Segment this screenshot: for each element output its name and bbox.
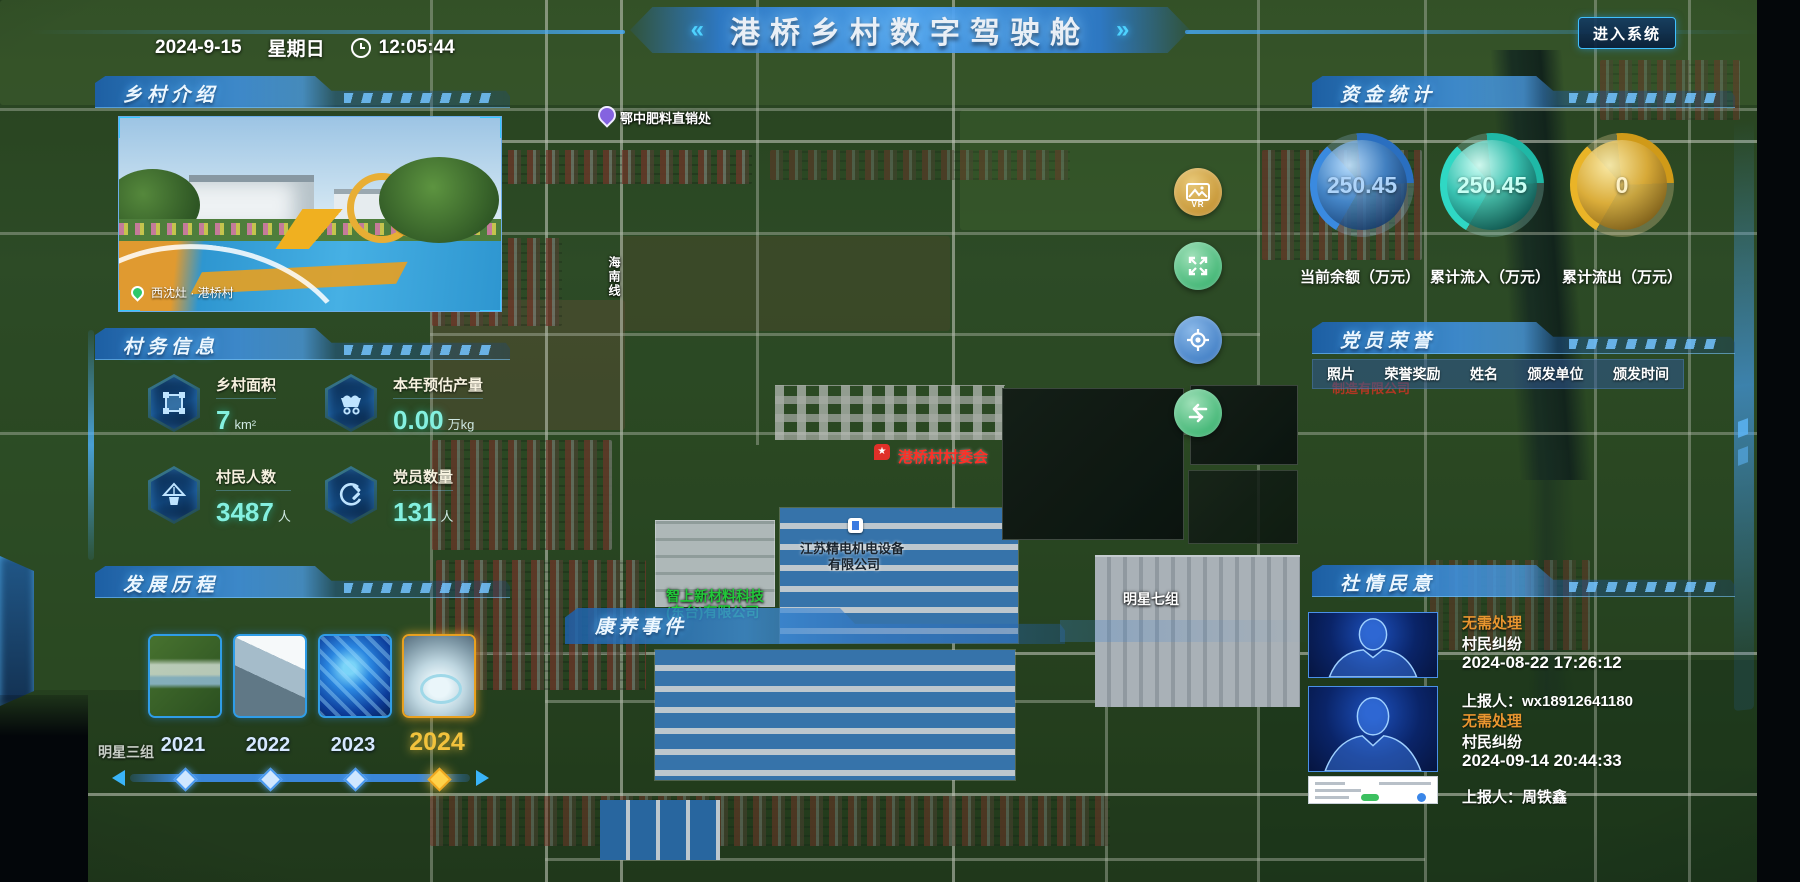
frame-decoration-right	[1734, 119, 1754, 711]
year-label-2022[interactable]: 2022	[233, 734, 303, 757]
year-label-2024[interactable]: 2024	[402, 728, 472, 757]
development-thumb-2024[interactable]	[402, 634, 476, 718]
frame-decoration-left	[88, 330, 94, 560]
stat-village-area: 乡村面积 7km²	[148, 374, 318, 436]
photo-tree	[379, 157, 499, 243]
panel-title-health-events: 康养事件	[595, 612, 687, 639]
gauge-sphere: 0	[1577, 140, 1667, 230]
stat-label: 村民人数	[216, 466, 291, 491]
farmer-icon	[148, 466, 200, 524]
map-label-group7: 明星七组	[1123, 589, 1179, 609]
thumb-image-2022	[235, 636, 305, 716]
corner-bracket-icon	[118, 290, 140, 312]
map-feature	[620, 236, 950, 331]
map-label-company1-line2: 有限公司	[828, 554, 880, 573]
gauge-total-inflow: 250.45	[1440, 133, 1544, 237]
corner-bracket-icon	[480, 290, 502, 312]
datetime-bar: 2024-9-15 星期日 12:05:44	[155, 34, 455, 61]
gauge-current-balance: 250.45	[1310, 133, 1414, 237]
frame-decoration-bottom-left	[0, 556, 34, 706]
year-label-2023[interactable]: 2023	[318, 734, 388, 757]
gauge-value: 0	[1616, 172, 1629, 199]
chevron-right-icon: »	[1116, 16, 1129, 44]
opinion-item-screenshot[interactable]	[1308, 776, 1438, 804]
photo-caption-text: 西沈灶 · 港桥村	[151, 284, 234, 301]
stat-label: 乡村面积	[216, 374, 276, 399]
panel-header-funds: 资金统计	[1312, 76, 1735, 108]
vr-label: VR	[1191, 200, 1204, 209]
panel-title-development: 发展历程	[123, 570, 219, 597]
honor-column-date: 颁发时间	[1613, 364, 1669, 384]
gauge-sphere: 250.45	[1317, 140, 1407, 230]
opinion-status: 无需处理	[1462, 612, 1522, 633]
honor-column-photo: 照片	[1327, 364, 1355, 384]
fullscreen-icon	[1187, 255, 1209, 277]
opinion-reporter: 上报人：wx18912641180	[1462, 690, 1633, 711]
development-thumb-2021[interactable]	[148, 634, 222, 718]
gauge-value: 250.45	[1327, 172, 1397, 199]
panel-header-stripes	[344, 345, 494, 355]
map-label-group3: 明星三组	[98, 742, 154, 762]
gauge-total-outflow: 0	[1570, 133, 1674, 237]
honor-column-award: 荣誉奖励	[1385, 364, 1441, 384]
opinion-item-avatar[interactable]	[1308, 686, 1438, 772]
map-river	[1490, 50, 1592, 480]
dashboard-root: 鄂中肥料直销处 ★ 港桥村村委会 江苏精电机电设备 有限公司 智上新材料科技 (…	[0, 0, 1800, 882]
panel-title-funds: 资金统计	[1340, 80, 1436, 107]
corner-bracket-icon	[118, 116, 140, 138]
panel-title-village-intro: 乡村介绍	[123, 80, 219, 107]
stat-unit: km²	[234, 417, 256, 432]
opinion-item-avatar[interactable]	[1308, 612, 1438, 678]
photo-caption: 西沈灶 · 港桥村	[131, 284, 234, 301]
party-emblem-icon	[325, 466, 377, 524]
corner-bracket-icon	[480, 116, 502, 138]
map-road	[0, 108, 1800, 111]
screen-edge-bottom-left	[0, 695, 88, 882]
stat-value: 0.00	[393, 405, 444, 435]
vr-button[interactable]: VR	[1174, 168, 1222, 216]
thumb-image-2024	[404, 636, 474, 716]
map-houses	[430, 796, 1110, 846]
map-residential	[775, 385, 1005, 440]
panel-title-village-info: 村务信息	[123, 332, 219, 359]
panel-header-stripes	[344, 583, 494, 593]
vr-panorama-icon	[1186, 183, 1210, 201]
panel-header-stripes	[1569, 582, 1719, 592]
panel-header-village-intro: 乡村介绍	[95, 76, 510, 108]
map-road	[756, 0, 759, 445]
map-label-committee: 港桥村村委会	[898, 446, 988, 467]
panel-title-opinion: 社情民意	[1340, 569, 1436, 596]
date-text: 2024-9-15	[155, 37, 242, 59]
year-label-2021[interactable]: 2021	[148, 734, 218, 757]
stat-value: 131	[393, 497, 436, 527]
stat-estimated-yield: 本年预估产量 0.00万kg	[325, 374, 495, 436]
thumb-image-2021	[150, 636, 220, 716]
timeline-next-icon[interactable]	[476, 770, 489, 786]
map-label-road: 海南线	[606, 256, 623, 298]
header-title-band: « 港桥乡村数字驾驶舱 »	[630, 7, 1190, 53]
screenshot-blue-dot	[1417, 793, 1426, 802]
time-text: 12:05:44	[379, 37, 455, 59]
map-houses	[770, 150, 1070, 180]
opinion-time: 2024-09-14 20:44:33	[1462, 751, 1622, 771]
switch-arrows-icon	[1186, 402, 1210, 424]
star-pin-icon: ★	[874, 444, 890, 460]
panel-header-stripes	[1569, 93, 1719, 103]
weekday-text: 星期日	[268, 34, 325, 61]
stat-villager-count: 村民人数 3487人	[148, 466, 318, 528]
area-icon	[148, 374, 200, 432]
layer-switch-button[interactable]	[1174, 389, 1222, 437]
opinion-time: 2024-08-22 17:26:12	[1462, 653, 1622, 673]
map-pin-icon	[594, 102, 619, 127]
enter-system-button[interactable]: 进入系统	[1578, 17, 1676, 49]
gauge-label-outflow: 累计流出（万元）	[1527, 266, 1717, 287]
opinion-reporter: 上报人：周铁鑫	[1462, 786, 1567, 807]
honor-table-header: 照片 荣誉奖励 姓名 颁发单位 颁发时间	[1312, 359, 1684, 389]
panel-header-village-info: 村务信息	[95, 328, 510, 360]
crosshair-icon	[1186, 328, 1210, 352]
gauge-value: 250.45	[1457, 172, 1527, 199]
panel-header-honor: 党员荣誉	[1312, 322, 1735, 354]
opinion-type: 村民纠纷	[1462, 633, 1522, 654]
development-thumb-2022[interactable]	[233, 634, 307, 718]
opinion-status: 无需处理	[1462, 710, 1522, 731]
screen-edge-right	[1757, 0, 1800, 882]
locate-button[interactable]	[1174, 316, 1222, 364]
honor-column-issuer: 颁发单位	[1528, 364, 1584, 384]
page-title: 港桥乡村数字驾驶舱	[730, 8, 1090, 52]
map-factory	[655, 650, 1015, 780]
stat-value: 7	[216, 405, 230, 435]
gauge-sphere: 250.45	[1447, 140, 1537, 230]
panel-header-development: 发展历程	[95, 566, 510, 598]
fullscreen-button[interactable]	[1174, 242, 1222, 290]
panel-header-opinion: 社情民意	[1312, 565, 1735, 597]
stat-unit: 人	[278, 509, 291, 524]
map-factory	[600, 800, 720, 860]
panel-title-honor: 党员荣誉	[1340, 326, 1436, 353]
cart-icon	[325, 374, 377, 432]
thumb-image-2023	[320, 636, 390, 716]
development-thumb-2023[interactable]	[318, 634, 392, 718]
health-events-band-fade	[1060, 620, 1320, 642]
map-label-fertilizer: 鄂中肥料直销处	[620, 108, 711, 127]
clock-icon	[351, 38, 371, 58]
panel-header-stripes	[344, 93, 494, 103]
stat-unit: 万kg	[448, 417, 475, 432]
honor-column-name: 姓名	[1470, 364, 1498, 384]
stat-value: 3487	[216, 497, 274, 527]
stat-label: 本年预估产量	[393, 374, 483, 399]
map-road	[1688, 0, 1691, 882]
opinion-type: 村民纠纷	[1462, 731, 1522, 752]
stat-party-member-count: 党员数量 131人	[325, 466, 495, 528]
panel-header-stripes	[1569, 339, 1719, 349]
map-road	[430, 333, 1260, 336]
stat-label: 党员数量	[393, 466, 453, 491]
screenshot-green-pill	[1361, 794, 1379, 801]
stat-unit: 人	[440, 509, 453, 524]
timeline-prev-icon[interactable]	[112, 770, 125, 786]
village-photo[interactable]: 西沈灶 · 港桥村	[118, 116, 502, 312]
map-road	[620, 0, 623, 882]
building-pin-icon	[848, 518, 863, 533]
map-pond	[1002, 388, 1184, 540]
map-pond	[1188, 470, 1298, 544]
chevron-left-icon: «	[691, 16, 704, 44]
